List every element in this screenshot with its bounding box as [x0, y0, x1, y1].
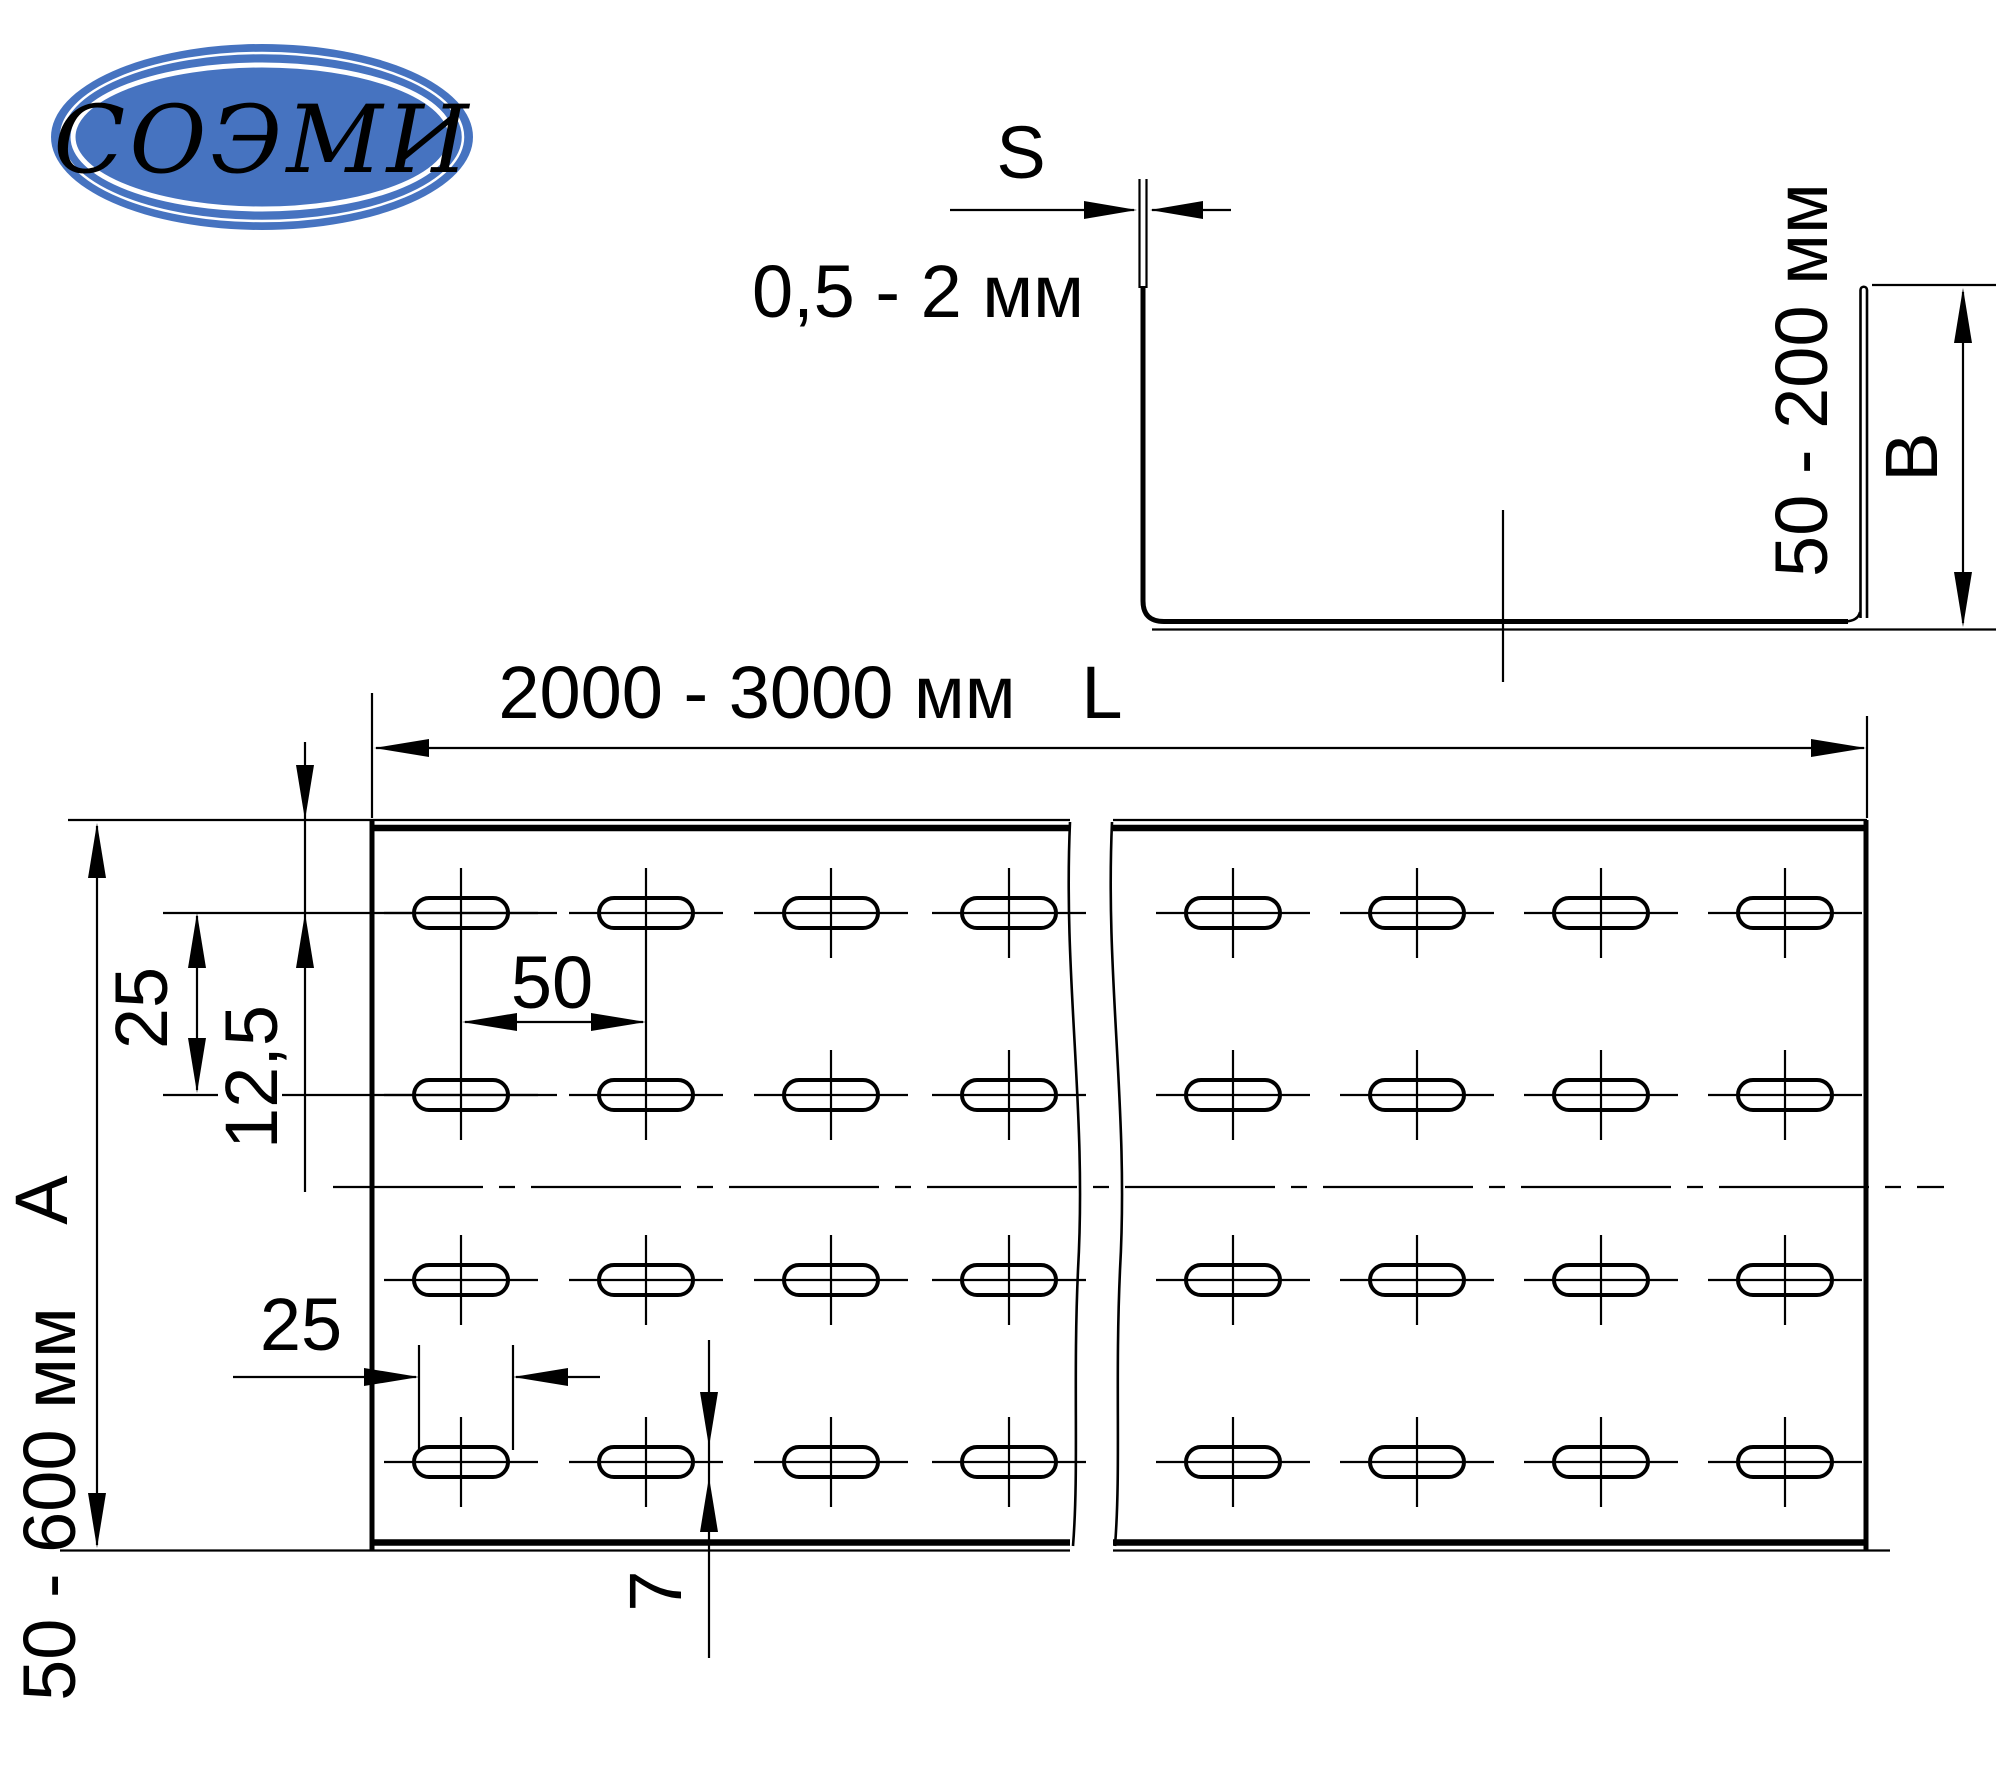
slotlen-arrow-left-icon [513, 1368, 568, 1386]
thickness-value: 0,5 - 2 мм [752, 250, 1084, 333]
length-dimension: 2000 - 3000 мм L [372, 651, 1867, 818]
slot [1524, 868, 1678, 958]
thickness-dimension: S 0,5 - 2 мм [752, 111, 1231, 333]
slot [932, 1417, 1086, 1507]
technical-drawing-page: СОЭМИ S 0,5 - 2 мм 50 - 200 мм [0, 0, 2000, 1771]
length-value: 2000 - 3000 мм [498, 651, 1015, 734]
pitch50-arrow-left-icon [462, 1013, 517, 1031]
slot-height-arrow-up-icon [700, 1477, 718, 1532]
cross-section-view: S 0,5 - 2 мм 50 - 200 мм B [752, 111, 1996, 682]
slotlen-arrow-right-icon [364, 1368, 419, 1386]
slot [1156, 1050, 1310, 1140]
slot [1524, 1235, 1678, 1325]
slot-height-arrow-down-icon [700, 1392, 718, 1447]
slot [932, 1235, 1086, 1325]
row-pitch-dimension: 25 [100, 913, 206, 1093]
offset-arrow-up-icon [296, 913, 314, 968]
logo: СОЭМИ [51, 44, 473, 230]
width-label: A [0, 1175, 83, 1225]
edge-offset-dimension: 12,5 [210, 742, 314, 1192]
slot [1524, 1417, 1678, 1507]
slot [1708, 1050, 1862, 1140]
side-height-value: 50 - 200 мм [1760, 183, 1843, 577]
slot [384, 1235, 538, 1325]
offset-arrow-down-icon [296, 765, 314, 820]
width-value: 50 - 600 мм [8, 1307, 91, 1701]
logo-text: СОЭМИ [53, 86, 472, 195]
slot [754, 1235, 908, 1325]
slot [754, 868, 908, 958]
slot [1524, 1050, 1678, 1140]
slot-height-value: 7 [614, 1570, 697, 1611]
slot [932, 868, 1086, 958]
slot [384, 1417, 538, 1507]
slot [569, 1235, 723, 1325]
slot [1156, 1235, 1310, 1325]
pitch25-arrow-up-icon [188, 913, 206, 968]
l-arrow-right-icon [1811, 739, 1866, 757]
slot [569, 1050, 723, 1140]
slot-length-dimension: 25 [233, 1283, 600, 1450]
slot [1708, 1417, 1862, 1507]
side-height-label: B [1870, 432, 1953, 481]
bottom-right-corner [1845, 612, 1860, 622]
width-dimension: 50 - 600 мм A [0, 823, 106, 1701]
slot [932, 1050, 1086, 1140]
break-line-left [1069, 822, 1080, 1546]
slot [569, 1417, 723, 1507]
slot [1708, 1235, 1862, 1325]
pitch50-arrow-right-icon [591, 1013, 646, 1031]
column-pitch-value: 50 [511, 941, 593, 1024]
slot [1340, 1050, 1494, 1140]
edge-offset-value: 12,5 [210, 1005, 293, 1149]
slot [1708, 868, 1862, 958]
plan-view: 2000 - 3000 мм L [0, 651, 1944, 1701]
row-pitch-value: 25 [100, 967, 183, 1049]
pitch25-arrow-down-icon [188, 1038, 206, 1093]
slot [1340, 1235, 1494, 1325]
slot [754, 1050, 908, 1140]
break-line-right [1111, 822, 1122, 1546]
cable-tray-drawing: СОЭМИ S 0,5 - 2 мм 50 - 200 мм [0, 0, 2000, 1771]
l-arrow-left-icon [374, 739, 429, 757]
b-arrow-up-icon [1954, 288, 1972, 343]
left-wall-and-bottom [1143, 286, 1848, 622]
b-arrow-down-icon [1954, 572, 1972, 627]
s-arrow-right-icon [1084, 201, 1137, 219]
slot [754, 1417, 908, 1507]
s-arrow-left-icon [1150, 201, 1203, 219]
slot [1156, 1417, 1310, 1507]
thickness-label: S [996, 111, 1045, 194]
slot [1340, 1417, 1494, 1507]
right-wall [1861, 287, 1868, 618]
column-pitch-dimension: 50 [462, 941, 646, 1031]
slot [1340, 868, 1494, 958]
slot-length-value: 25 [260, 1283, 342, 1366]
slot-height-dimension: 7 [614, 1340, 718, 1658]
length-label: L [1081, 651, 1122, 734]
slot [1156, 868, 1310, 958]
a-arrow-up-icon [88, 823, 106, 878]
